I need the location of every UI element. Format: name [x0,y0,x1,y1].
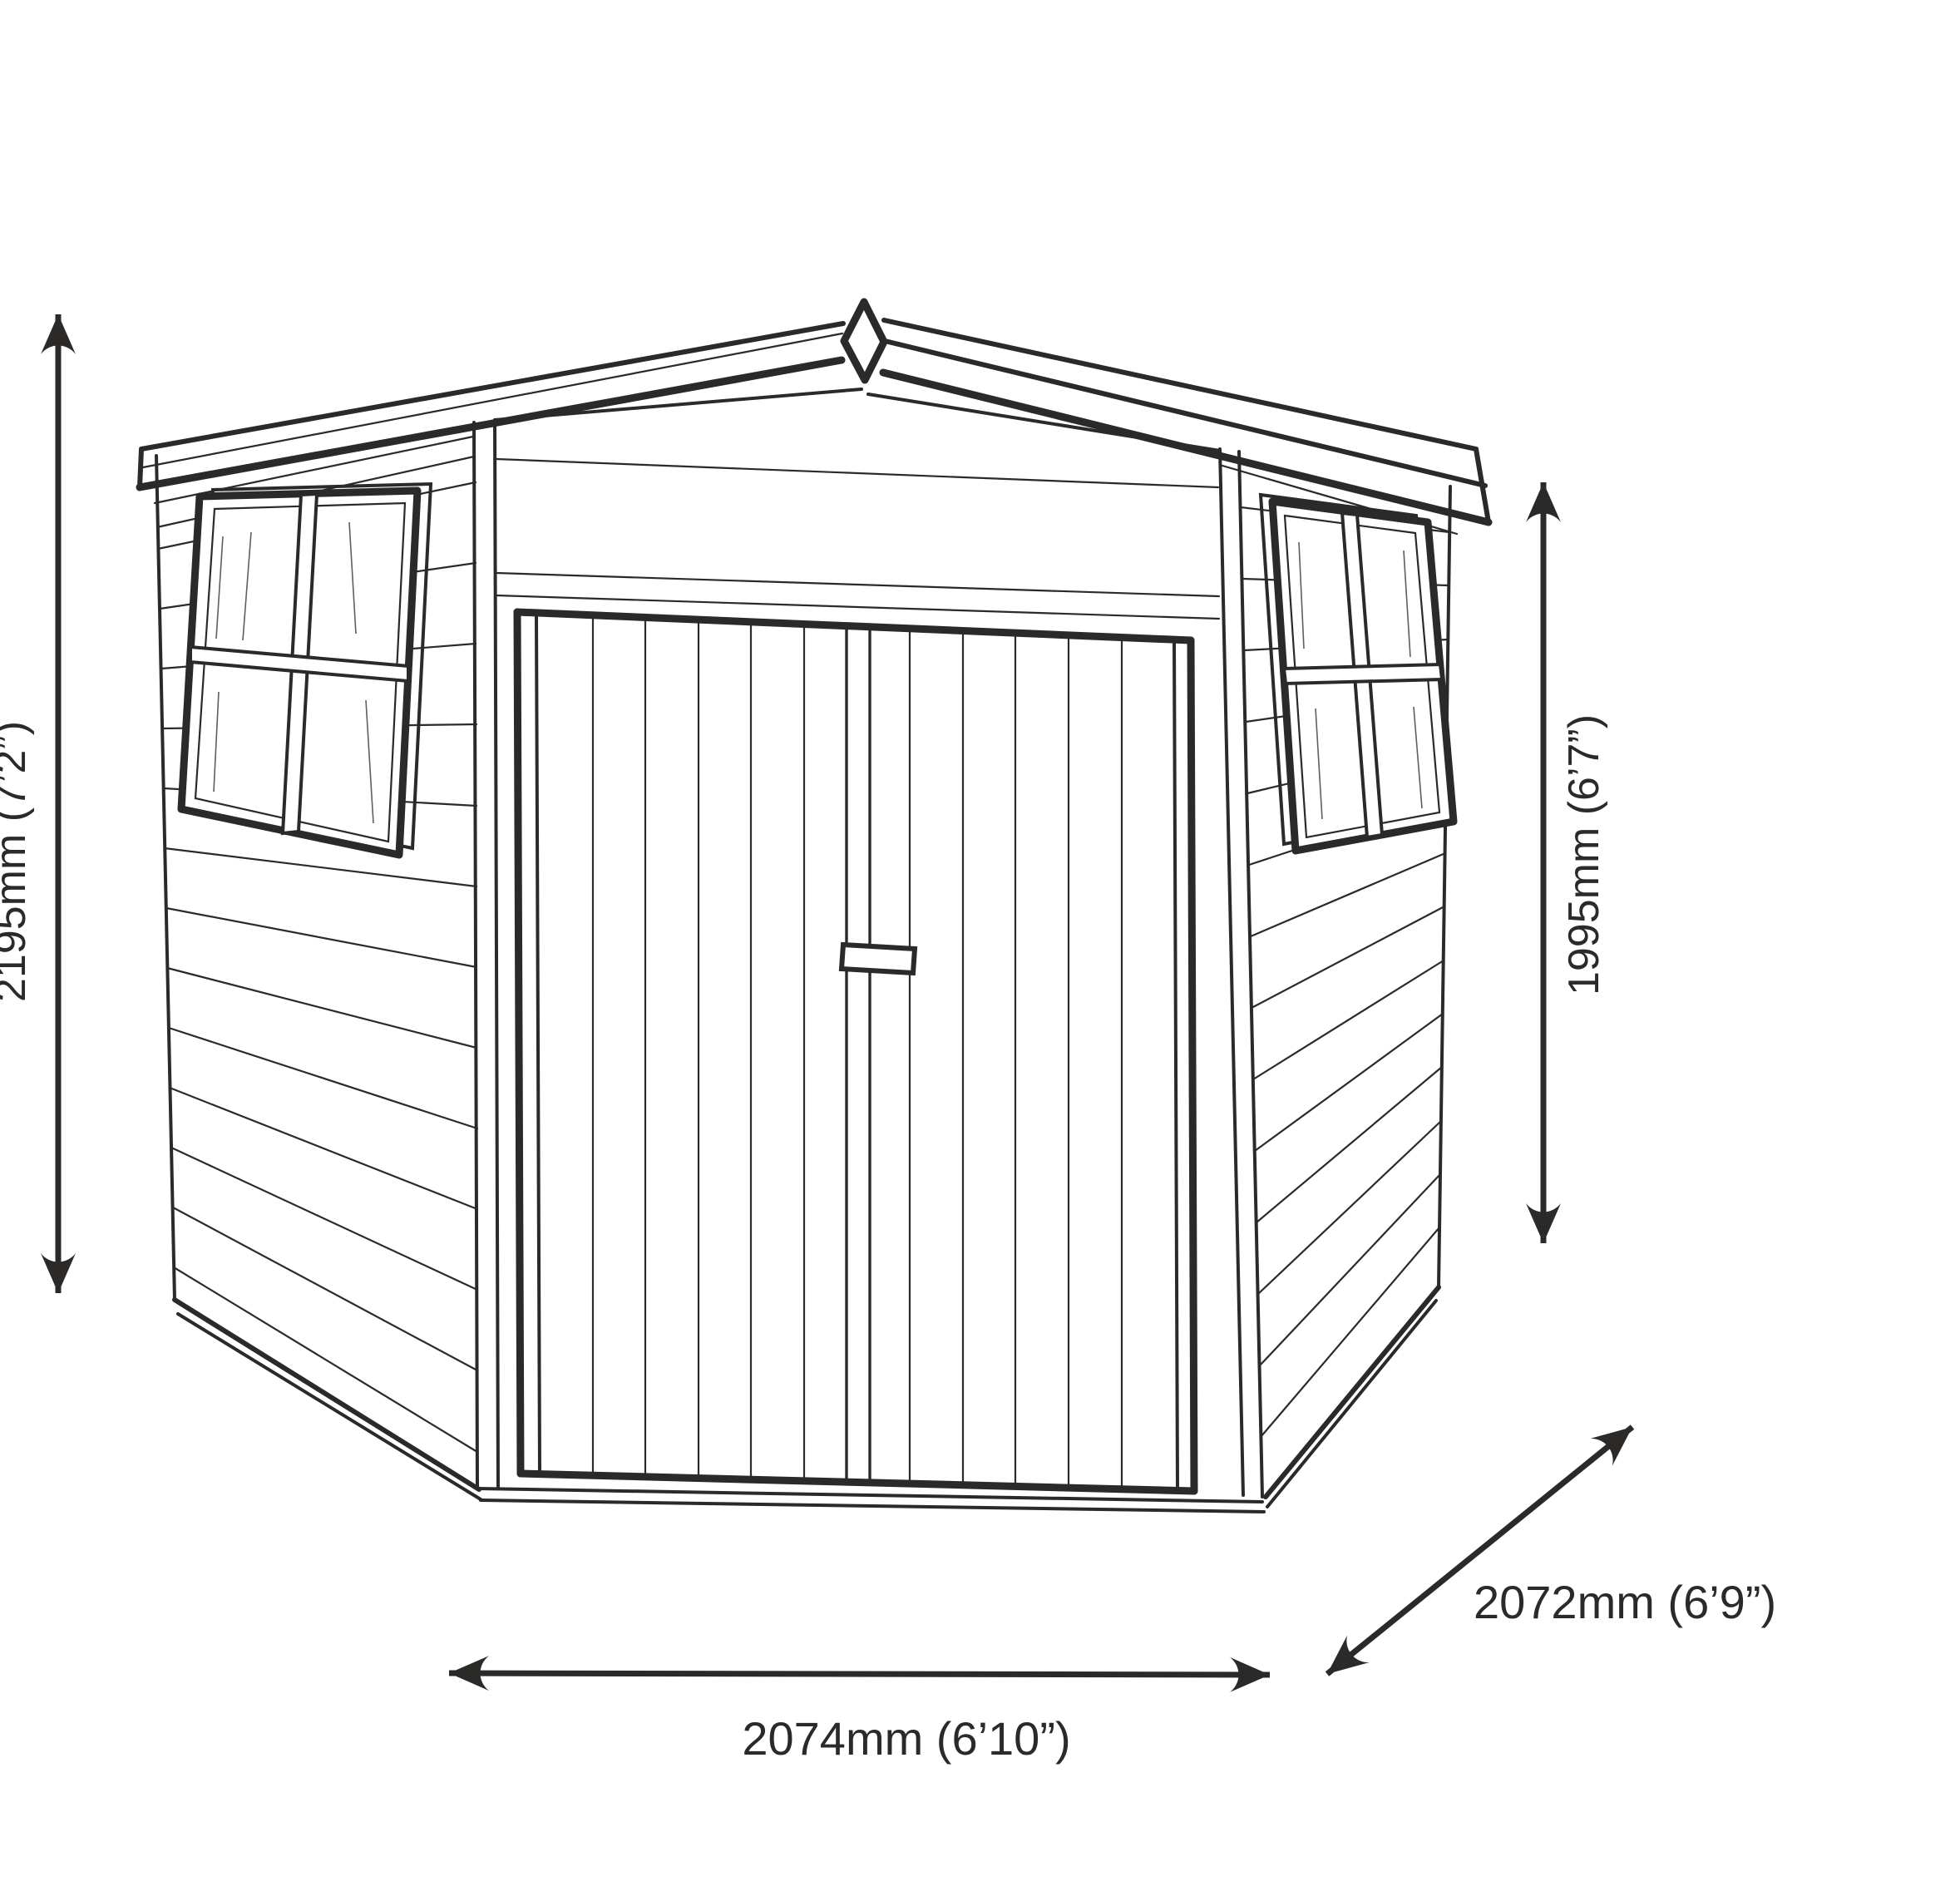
roof-right-fascia [883,320,1489,522]
gable-band [496,459,1218,487]
side-depth-dimension: 2072mm (6’9”) [1327,1427,1776,1674]
left-wall-skid [175,1300,481,1499]
right-wall-skid [1266,1287,1439,1507]
side-depth-label: 2072mm (6’9”) [1474,1576,1776,1628]
right-height-dimension: 1995mm (6’7”) [1543,482,1608,1243]
front-width-arrow [449,1673,1270,1675]
front-width-label: 2074mm (6’10”) [742,1712,1070,1765]
left-window [181,484,431,855]
right-window [1261,495,1454,851]
left-height-label: 2195mm (7’2”) [0,721,35,1002]
door-frame-left [517,612,521,1474]
door-frame-right [1191,640,1194,1491]
door-frame-top [517,612,1191,640]
door-planks [593,619,1122,1489]
front-width-dimension: 2074mm (6’10”) [449,1673,1270,1765]
front-gable [495,389,1220,619]
door-frame-bottom [521,1474,1194,1491]
double-doors [517,612,1194,1491]
right-height-label: 1995mm (6’7”) [1560,714,1608,995]
roof-diamond-finial [844,302,884,380]
left-wall-outer-edge [156,456,175,1300]
roof-left-fascia [140,323,843,487]
door-meeting-stiles [847,629,870,1481]
left-corner-post [474,422,477,1487]
door-handle-latch [842,945,915,973]
corner-shed-drawing: 2195mm (7’2”) 1995mm (6’7”) 2074mm (6’10… [0,0,1960,1896]
right-wall-outer-edge [1439,486,1450,1287]
left-height-dimension: 2195mm (7’2”) [0,314,58,1293]
shed-dimension-diagram: 2195mm (7’2”) 1995mm (6’7”) 2074mm (6’10… [0,0,1960,1896]
right-corner-post [1220,449,1243,1495]
right-window-horizontal-mullion [1284,664,1442,684]
side-depth-arrow [1327,1427,1632,1674]
